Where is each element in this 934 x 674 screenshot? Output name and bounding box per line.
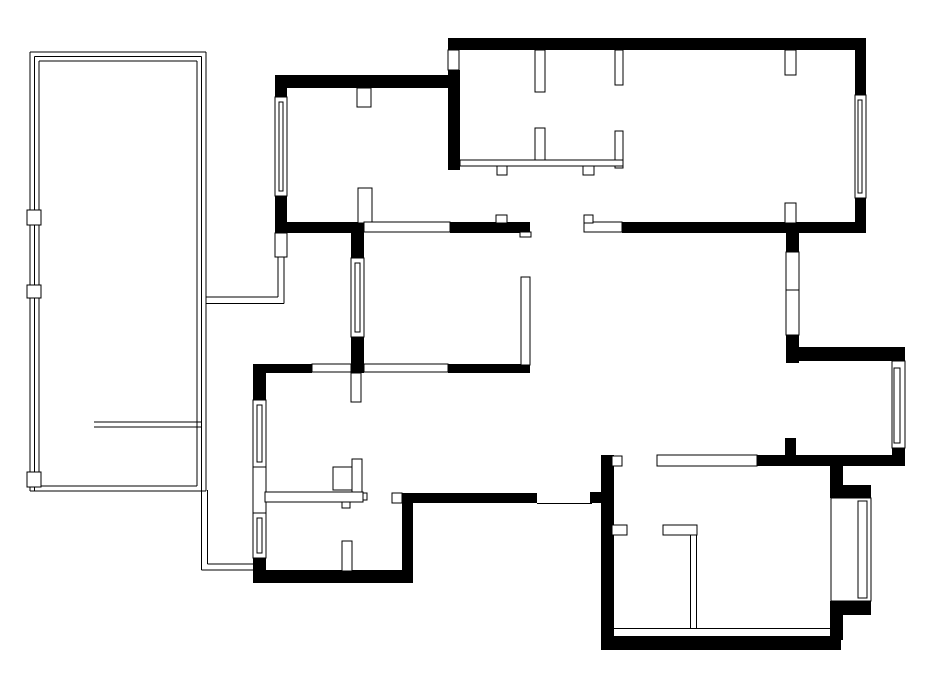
wall-segment bbox=[786, 335, 799, 363]
window-glass bbox=[858, 100, 862, 193]
wall-segment bbox=[622, 222, 866, 233]
wall-opening-segment bbox=[663, 525, 697, 535]
wall-segment bbox=[601, 455, 614, 640]
wall-opening-segment bbox=[615, 50, 623, 85]
wall-opening-segment bbox=[535, 50, 545, 92]
wall-segment bbox=[253, 364, 266, 400]
wall-opening-segment bbox=[785, 50, 796, 75]
wall-opening-segment bbox=[351, 373, 361, 402]
wall-opening-segment bbox=[521, 277, 530, 365]
wall-opening-segment bbox=[460, 160, 623, 166]
wall-segment bbox=[448, 364, 530, 373]
wall-opening-segment bbox=[312, 364, 351, 372]
wall-opening-segment bbox=[785, 203, 796, 223]
wall-segment bbox=[450, 222, 530, 233]
balcony-post bbox=[27, 210, 41, 225]
wall-segment bbox=[757, 455, 905, 466]
wall-opening-segment bbox=[364, 222, 450, 232]
wall-opening-segment bbox=[535, 128, 545, 162]
wall-segment bbox=[830, 466, 843, 486]
wall-opening-segment bbox=[352, 459, 362, 492]
wall-opening-segment bbox=[358, 188, 372, 223]
wall-segment bbox=[402, 493, 537, 503]
wall-segment bbox=[448, 38, 866, 50]
wall-segment bbox=[253, 570, 413, 583]
wall-segment bbox=[351, 364, 364, 373]
wall-segment bbox=[601, 636, 841, 650]
wall-opening-segment bbox=[497, 166, 507, 175]
wall-opening-segment bbox=[253, 467, 266, 513]
floor-plan-drawing bbox=[0, 0, 934, 674]
floor-plan-canvas bbox=[0, 0, 934, 674]
window-glass bbox=[279, 102, 283, 191]
wall-segment bbox=[785, 438, 796, 456]
wall-segment bbox=[830, 601, 871, 615]
wall-segment bbox=[830, 615, 843, 640]
wall-opening-segment bbox=[342, 541, 352, 571]
window-glass bbox=[894, 368, 900, 443]
wall-segment bbox=[275, 88, 287, 97]
wall-opening-segment bbox=[786, 252, 799, 290]
wall-opening-segment bbox=[448, 50, 459, 70]
wall-segment bbox=[786, 233, 799, 252]
wall-opening-segment bbox=[265, 492, 363, 502]
wall-opening-segment bbox=[786, 290, 799, 335]
wall-segment bbox=[275, 222, 364, 233]
wall-segment bbox=[275, 75, 460, 88]
window-glass bbox=[257, 518, 262, 553]
wall-opening-segment bbox=[612, 456, 622, 466]
wall-opening-segment bbox=[333, 467, 352, 490]
wall-opening-segment bbox=[584, 215, 593, 223]
wall-segment bbox=[448, 70, 460, 170]
window-glass bbox=[858, 501, 867, 598]
wall-opening-segment bbox=[357, 88, 371, 107]
wall-opening-segment bbox=[612, 525, 627, 535]
wall-opening-segment bbox=[496, 215, 507, 223]
wall-opening-segment bbox=[364, 364, 448, 372]
wall-segment bbox=[830, 485, 871, 498]
wall-segment bbox=[351, 233, 364, 258]
wall-opening-segment bbox=[392, 493, 402, 503]
wall-segment bbox=[855, 50, 866, 95]
window-glass bbox=[257, 405, 262, 462]
balcony-post bbox=[27, 285, 41, 298]
wall-segment bbox=[402, 493, 413, 583]
wall-opening-segment bbox=[657, 455, 757, 466]
wall-opening-segment bbox=[583, 166, 594, 175]
wall-segment bbox=[892, 448, 905, 466]
wall-opening-segment bbox=[342, 502, 350, 508]
balcony-post bbox=[27, 472, 41, 487]
wall-opening-segment bbox=[520, 232, 531, 237]
wall-segment bbox=[797, 347, 905, 361]
window-glass bbox=[355, 263, 360, 332]
wall-opening-segment bbox=[275, 233, 287, 257]
wall-opening-segment bbox=[363, 493, 367, 500]
